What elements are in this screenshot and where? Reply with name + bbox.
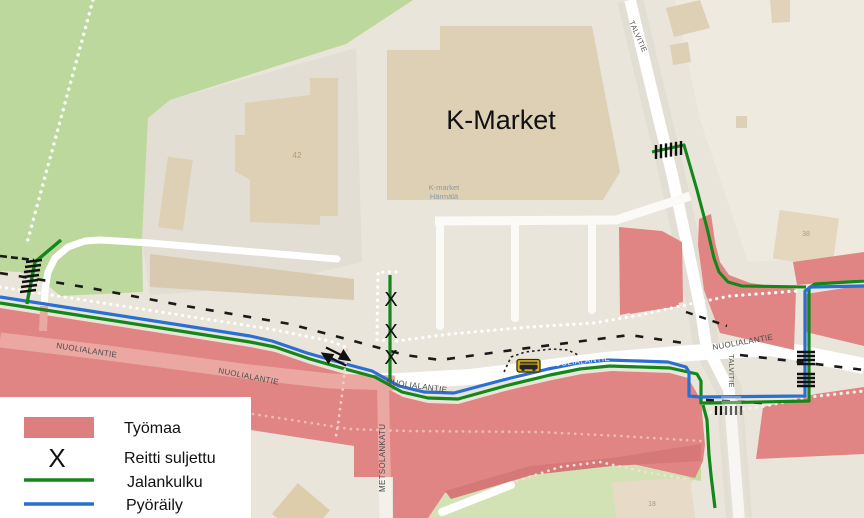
svg-text:TALVITIE: TALVITIE <box>727 354 736 388</box>
svg-text:Jalankulku: Jalankulku <box>127 474 203 491</box>
svg-text:K-market: K-market <box>429 183 460 192</box>
svg-text:METSOLANKATU: METSOLANKATU <box>378 424 387 492</box>
svg-text:Reitti suljettu: Reitti suljettu <box>124 450 216 467</box>
svg-text:K-Market: K-Market <box>446 105 556 135</box>
svg-text:Härmälä: Härmälä <box>430 192 459 201</box>
svg-text:Pyöräily: Pyöräily <box>126 497 183 514</box>
svg-text:X: X <box>48 443 65 473</box>
svg-text:42: 42 <box>293 151 302 160</box>
svg-text:X: X <box>384 347 397 369</box>
svg-text:38: 38 <box>802 231 810 238</box>
svg-text:X: X <box>384 321 397 343</box>
svg-text:Työmaa: Työmaa <box>124 420 181 437</box>
svg-text:X: X <box>384 289 397 311</box>
svg-text:18: 18 <box>648 501 656 508</box>
